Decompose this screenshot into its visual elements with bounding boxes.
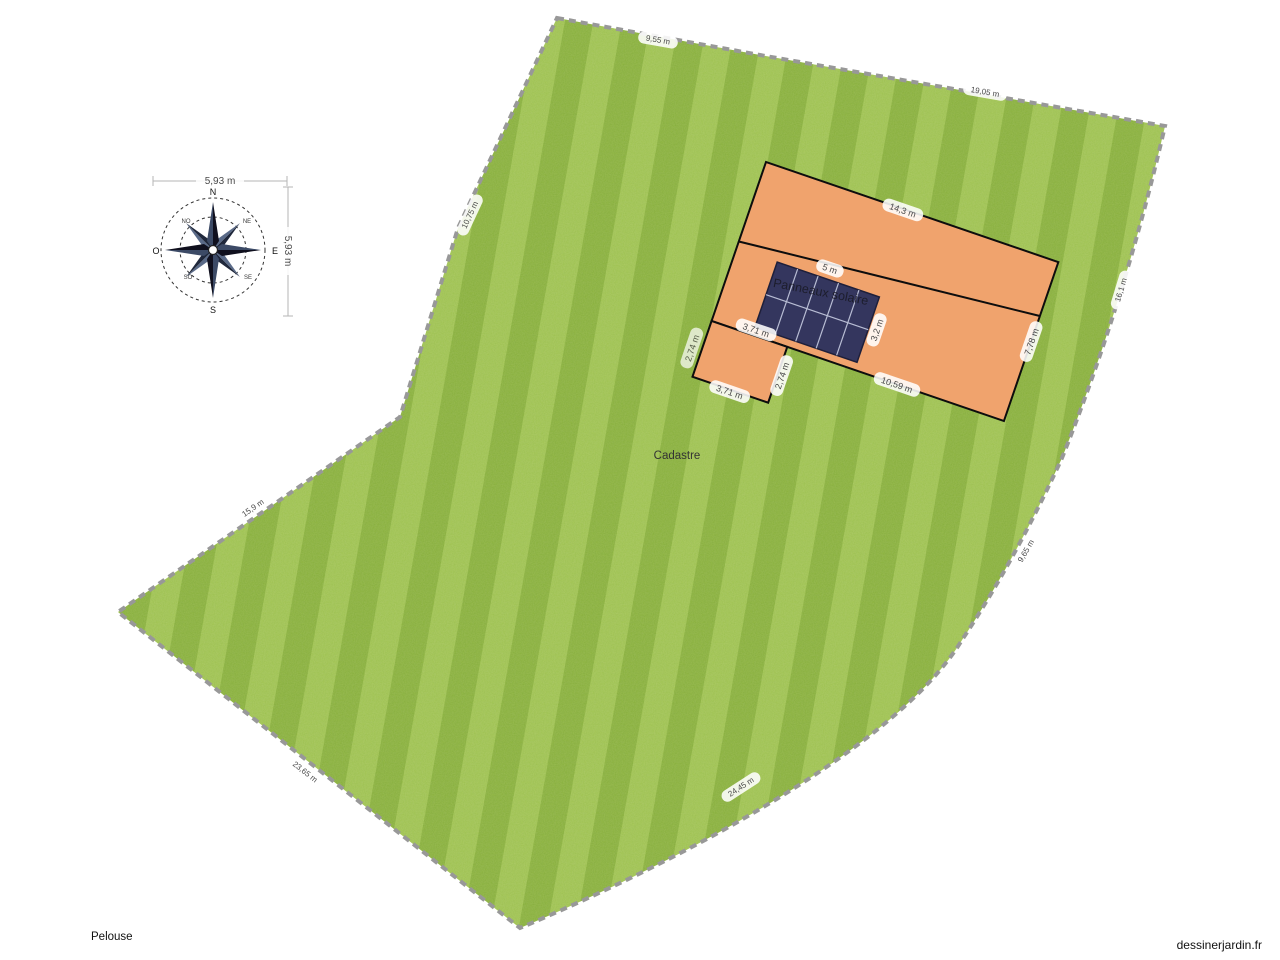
watermark-dessinerjardin: dessinerjardin.fr bbox=[1177, 938, 1262, 952]
compass-label-o: O bbox=[152, 246, 159, 256]
compass-label-so: SO bbox=[184, 275, 193, 281]
compass-hub bbox=[209, 246, 218, 255]
lawn-mow-stripes bbox=[118, 18, 1165, 928]
compass-label-e: E bbox=[272, 246, 278, 256]
compass-label-ne: NE bbox=[243, 219, 251, 225]
compass-dim-top: 5,93 m bbox=[196, 174, 244, 188]
compass-label-s: S bbox=[210, 305, 216, 315]
cadastre-label: Cadastre bbox=[654, 450, 701, 462]
compass-dim-top-text: 5,93 m bbox=[205, 176, 236, 187]
pelouse-label: Pelouse bbox=[91, 931, 133, 943]
compass-label-no: NO bbox=[182, 219, 191, 225]
garden-plan-canvas: 9,55 m 19,05 m 16,1 m 9,65 m 24,45 m 23,… bbox=[0, 0, 1280, 960]
compass-rose[interactable]: N S O E NO NE SO SE bbox=[152, 187, 278, 315]
compass-label-n: N bbox=[210, 187, 217, 197]
compass-label-se: SE bbox=[244, 275, 252, 281]
compass-dim-right-text: 5,93 m bbox=[282, 236, 293, 267]
compass-dim-right: 5,93 m bbox=[281, 227, 295, 275]
lawn-shape[interactable] bbox=[90, 0, 1200, 960]
